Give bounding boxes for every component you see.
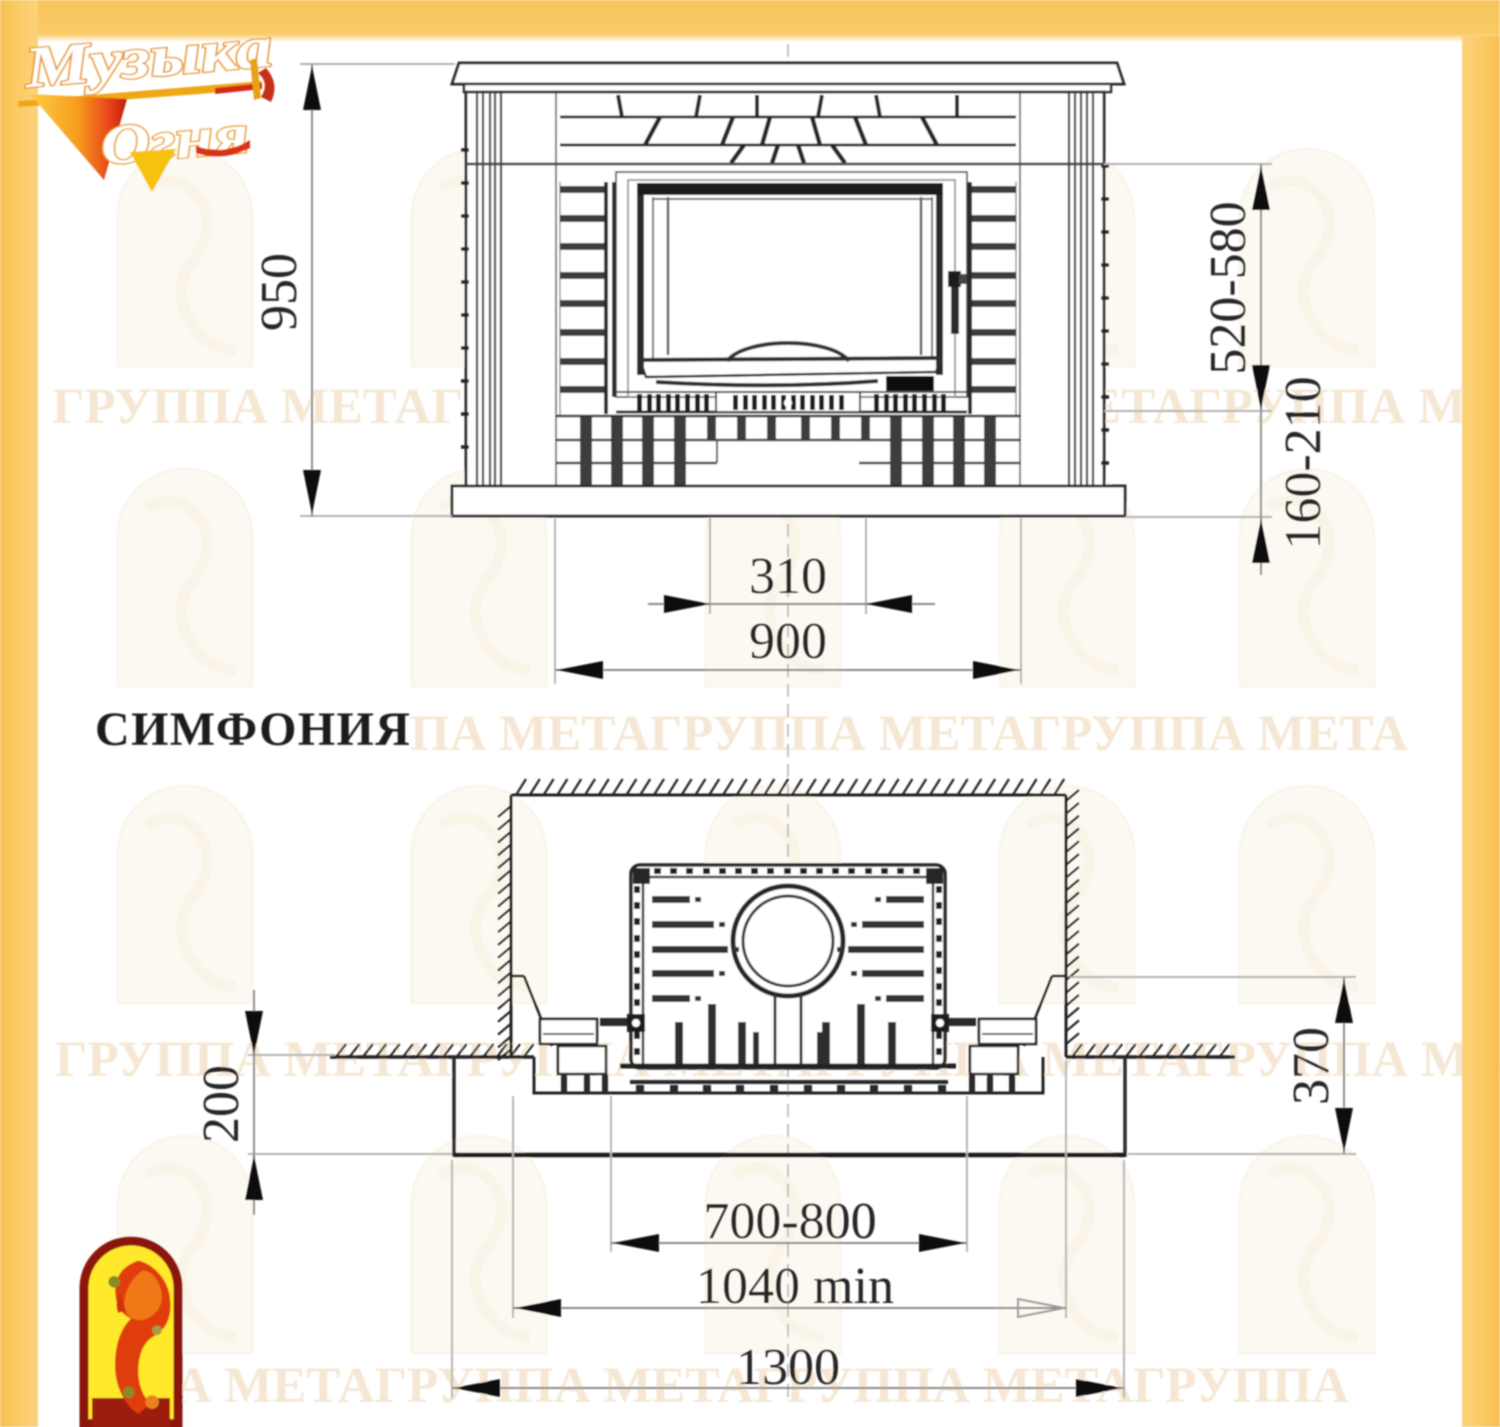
svg-text:310: 310 (749, 548, 827, 605)
svg-text:950: 950 (251, 253, 308, 331)
svg-text:160-210: 160-210 (1275, 376, 1332, 549)
svg-text:370: 370 (1283, 1027, 1340, 1105)
svg-text:Огня: Огня (98, 103, 251, 178)
svg-text:1040 min: 1040 min (696, 1258, 894, 1315)
svg-text:СИМФОНИЯ: СИМФОНИЯ (95, 703, 411, 756)
svg-text:200: 200 (193, 1065, 250, 1143)
svg-text:1300: 1300 (736, 1339, 840, 1396)
svg-text:900: 900 (749, 613, 827, 670)
svg-text:520-580: 520-580 (1200, 201, 1257, 374)
svg-text:ПА МЕТАГРУППА МЕТАГРУППА МЕТА: ПА МЕТАГРУППА МЕТАГРУППА МЕТА (410, 706, 1408, 762)
svg-text:700-800: 700-800 (703, 1193, 876, 1250)
